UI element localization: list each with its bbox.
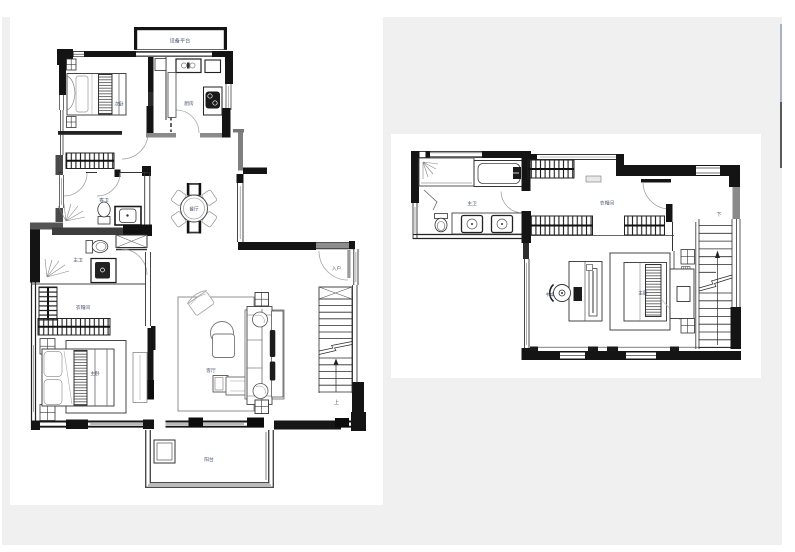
svg-text:客卫: 客卫 — [99, 197, 109, 204]
svg-text:入户: 入户 — [332, 265, 341, 272]
svg-text:书桌: 书桌 — [546, 291, 555, 298]
svg-text:阳台: 阳台 — [204, 456, 214, 463]
svg-text:衣帽间: 衣帽间 — [76, 304, 91, 311]
svg-text:餐厅: 餐厅 — [189, 206, 199, 213]
svg-text:厨房: 厨房 — [184, 100, 194, 107]
svg-text:衣帽间: 衣帽间 — [600, 200, 615, 207]
svg-text:主卫: 主卫 — [467, 200, 477, 207]
svg-text:次卧: 次卧 — [114, 101, 124, 108]
svg-text:下: 下 — [716, 212, 721, 218]
svg-text:上: 上 — [334, 399, 339, 406]
svg-text:主卫: 主卫 — [73, 257, 83, 264]
svg-text:主卧: 主卧 — [90, 370, 100, 377]
svg-text:客厅: 客厅 — [206, 367, 216, 374]
svg-text:设备平台: 设备平台 — [170, 37, 191, 45]
svg-text:主卧: 主卧 — [638, 290, 648, 297]
